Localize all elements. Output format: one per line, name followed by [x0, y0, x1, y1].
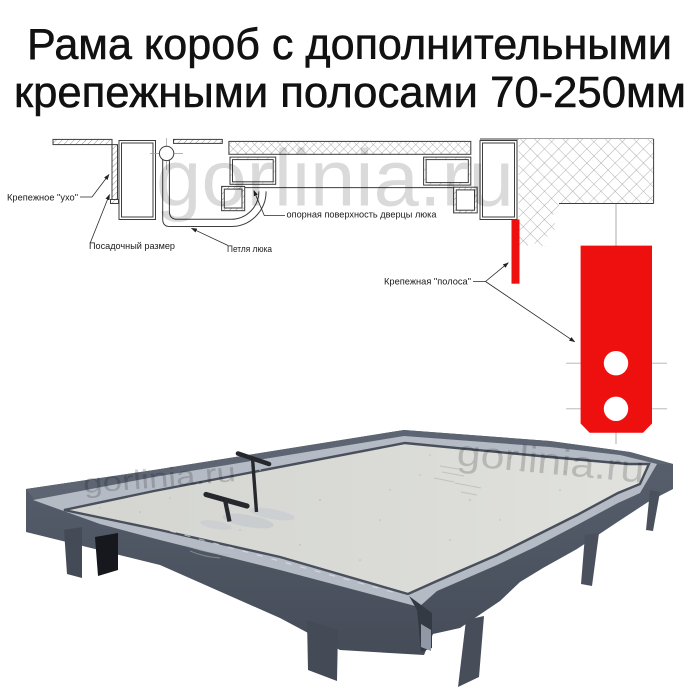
svg-text:крепежными полосами 70-250мм: крепежными полосами 70-250мм [14, 68, 686, 117]
svg-text:Рама короб с дополнительными: Рама короб с дополнительными [27, 20, 672, 69]
svg-text:gorlinia.ru: gorlinia.ru [156, 134, 514, 223]
svg-text:Посадочный размер: Посадочный размер [89, 241, 175, 252]
svg-text:Крепежное "ухо": Крепежное "ухо" [7, 193, 78, 204]
svg-text:Петля люка: Петля люка [227, 244, 273, 255]
svg-text:Крепежная "полоса": Крепежная "полоса" [384, 277, 471, 288]
